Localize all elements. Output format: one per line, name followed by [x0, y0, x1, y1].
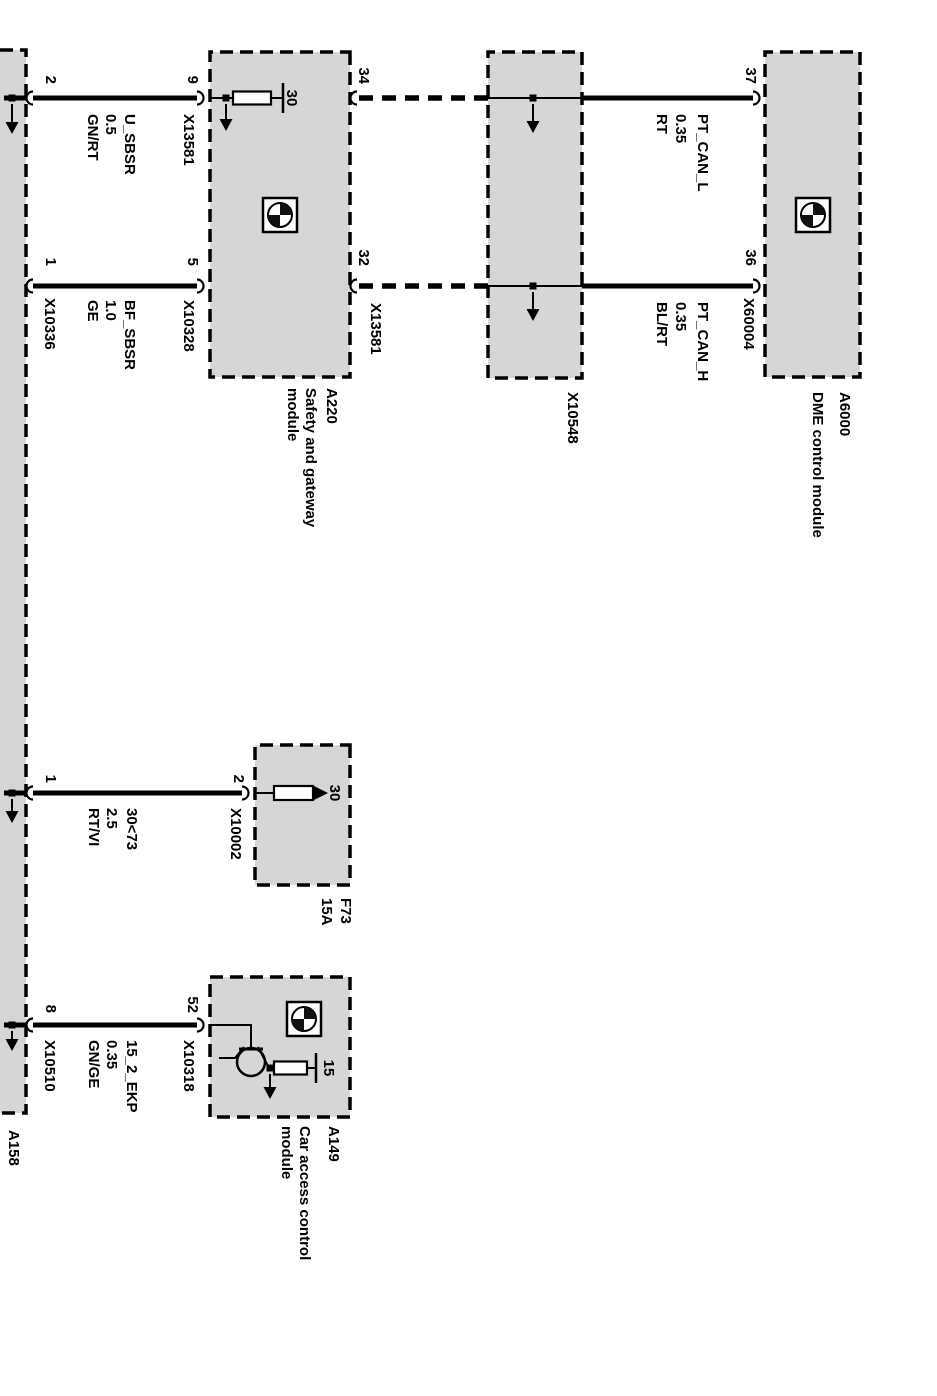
- wire-color-label: BL/RT: [653, 302, 669, 346]
- terminal-label: 30: [283, 83, 299, 113]
- fuse-symbol-cas: [274, 1062, 307, 1075]
- connector-id-label: X10002: [227, 808, 243, 860]
- wire-color-label: RT/VI: [85, 808, 101, 846]
- wire-name-label: 15_2_EKP: [123, 1040, 139, 1113]
- connector-id-label: X10328: [180, 300, 196, 352]
- wire-size-label: 0.35: [672, 114, 688, 143]
- pin-number-label: 32: [355, 240, 371, 266]
- module-name-label: Car access control: [296, 1126, 312, 1260]
- wire-size-label: 0.5: [102, 114, 118, 135]
- wire-color-label: RT: [653, 114, 669, 134]
- wire-name-label: PT_CAN_L: [694, 114, 710, 192]
- pin-number-label: 2: [42, 58, 58, 84]
- wiring-diagram-page: A6000 DME control module 37 36 X60004 PT…: [0, 0, 937, 1396]
- wire-size-label: 0.35: [103, 1040, 119, 1069]
- wire-name-label: PT_CAN_H: [694, 302, 710, 381]
- pin-number-label: 9: [184, 58, 200, 84]
- pin-number-label: 8: [42, 987, 58, 1013]
- module-name-label: DME control module: [809, 392, 825, 538]
- module-name-label: Safety and gateway: [302, 388, 318, 527]
- pin-number-label: 2: [230, 757, 246, 783]
- pin-number-label: 37: [742, 58, 758, 84]
- pin-number-label: 1: [42, 240, 58, 266]
- wire-name-label: U_SBSR: [121, 114, 137, 175]
- connector-id-label: X13581: [367, 303, 383, 355]
- rotated-diagram-canvas: A6000 DME control module 37 36 X60004 PT…: [0, 0, 937, 1396]
- wire-color-label: GN/GE: [85, 1040, 101, 1088]
- fuse-symbol-f73: [274, 786, 313, 800]
- connector-id-label: X10318: [180, 1040, 196, 1092]
- module-id-label: A220: [323, 388, 339, 424]
- connector-id-label: X13581: [180, 114, 196, 166]
- fuse-rating-label: 15A: [318, 898, 334, 926]
- connector-id-label: X10548: [564, 392, 580, 444]
- wire-size-label: 2.5: [103, 808, 119, 829]
- diagram-graphics: [0, 0, 937, 1396]
- wire-size-label: 0.35: [672, 302, 688, 331]
- wire-name-label: BF_SBSR: [121, 300, 137, 370]
- wire-color-label: GE: [84, 300, 100, 322]
- wire-size-label: 1.0: [102, 300, 118, 321]
- pin-number-label: 52: [184, 987, 200, 1013]
- terminal-label: 15: [320, 1053, 336, 1083]
- bmw-roundel-icon: [287, 1002, 321, 1036]
- wire-name-label: 30<73: [123, 808, 139, 850]
- cas-module-box: [210, 977, 350, 1117]
- connector-id-label: X60004: [740, 298, 756, 350]
- module-name-label: module: [278, 1126, 294, 1179]
- module-name-label: module: [284, 388, 300, 441]
- bmw-roundel-icon: [796, 198, 830, 232]
- module-id-label: A6000: [836, 392, 852, 436]
- pin-number-label: 34: [355, 58, 371, 84]
- wire-color-label: GN/RT: [84, 114, 100, 161]
- connector-id-label: X10336: [41, 298, 57, 350]
- fuse-f73-box: [255, 745, 350, 885]
- a158-partial-box: [0, 50, 26, 1113]
- fuse-id-label: F73: [337, 898, 353, 924]
- pin-number-label: 5: [184, 240, 200, 266]
- connector-socket-icons: [26, 92, 759, 1032]
- pin-number-label: 1: [42, 757, 58, 783]
- connector-id-label: X10510: [41, 1040, 57, 1092]
- module-id-label: A158: [5, 1130, 21, 1166]
- pin-number-label: 36: [742, 240, 758, 266]
- terminal-label: 30: [326, 778, 342, 808]
- module-id-label: A149: [325, 1126, 341, 1162]
- fuse-symbol-gateway: [233, 92, 271, 105]
- bmw-roundel-icon: [263, 198, 297, 232]
